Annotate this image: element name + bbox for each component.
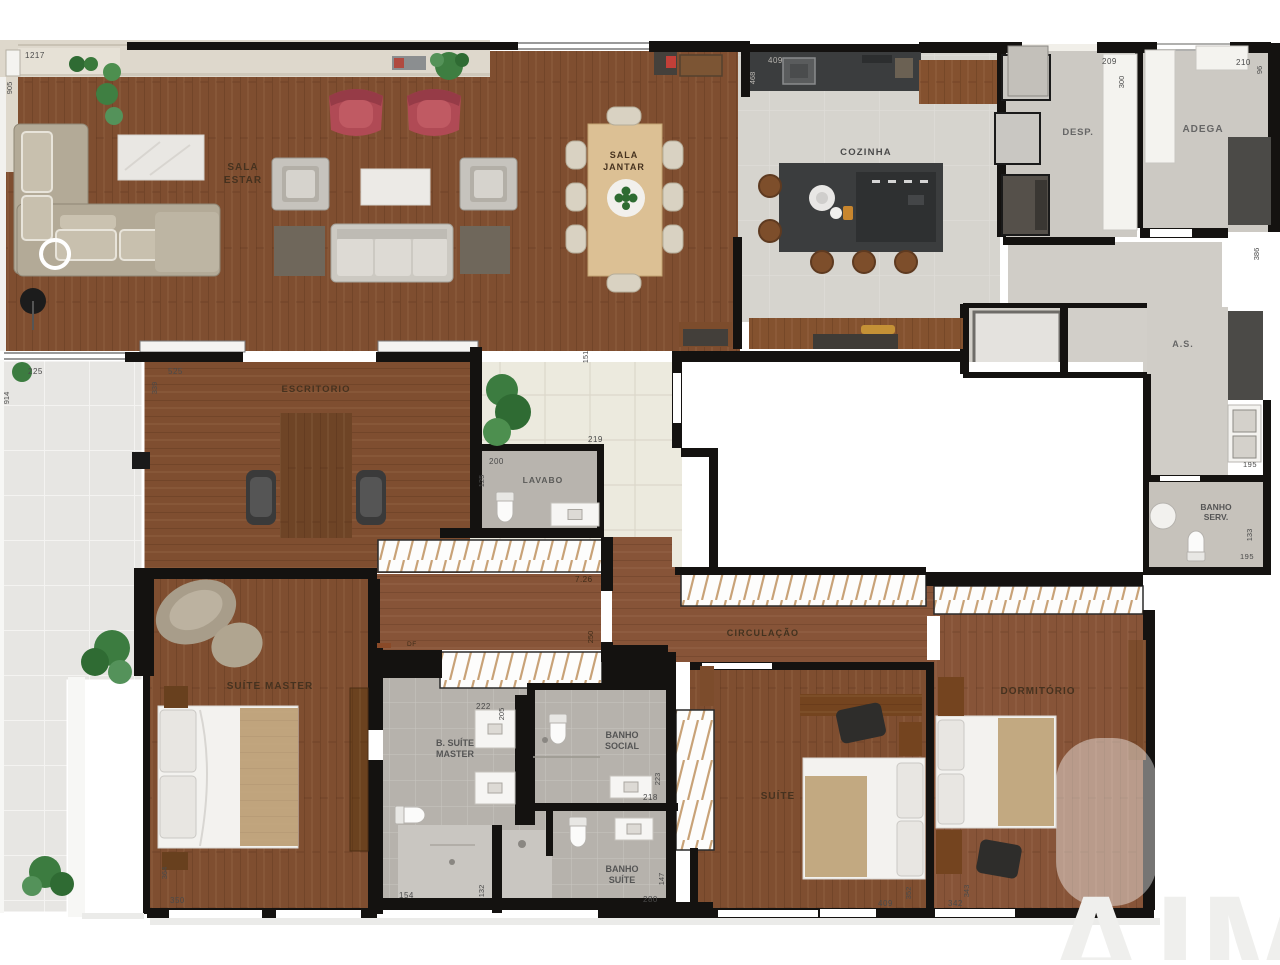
svg-text:DORMITÓRIO: DORMITÓRIO <box>1001 684 1076 697</box>
svg-text:LAVABO: LAVABO <box>523 475 564 485</box>
svg-text:409: 409 <box>768 56 783 65</box>
svg-text:195: 195 <box>1243 460 1257 469</box>
svg-text:DF: DF <box>407 641 417 648</box>
svg-text:364: 364 <box>160 867 169 880</box>
svg-text:COZINHA: COZINHA <box>840 147 892 158</box>
svg-text:350: 350 <box>170 896 185 905</box>
svg-text:225: 225 <box>28 367 43 376</box>
svg-text:ESTAR: ESTAR <box>224 175 262 186</box>
svg-text:210: 210 <box>1236 58 1251 67</box>
svg-text:MASTER: MASTER <box>436 749 475 759</box>
svg-text:CIRCULAÇÃO: CIRCULAÇÃO <box>727 628 800 638</box>
svg-text:B. SUÍTE: B. SUÍTE <box>436 738 474 748</box>
svg-text:SERV.: SERV. <box>1204 512 1229 522</box>
svg-text:125: 125 <box>477 475 486 488</box>
svg-text:218: 218 <box>643 793 658 802</box>
svg-text:914: 914 <box>2 392 11 405</box>
svg-text:132: 132 <box>477 885 486 898</box>
svg-text:BANHO: BANHO <box>1200 502 1232 512</box>
svg-text:ESCRITORIO: ESCRITORIO <box>282 384 351 395</box>
svg-text:133: 133 <box>1245 529 1254 542</box>
svg-text:343: 343 <box>962 885 971 898</box>
svg-text:AIM: AIM <box>1042 864 1280 960</box>
svg-text:386: 386 <box>1252 248 1261 261</box>
svg-text:SUÍTE: SUÍTE <box>609 875 636 885</box>
svg-text:151: 151 <box>581 351 590 364</box>
svg-text:SUÍTE MASTER: SUÍTE MASTER <box>227 679 313 692</box>
svg-text:525: 525 <box>168 367 183 376</box>
svg-text:342: 342 <box>948 899 963 908</box>
svg-text:905: 905 <box>5 82 14 95</box>
svg-text:205: 205 <box>497 708 506 721</box>
svg-text:ADEGA: ADEGA <box>1182 124 1223 135</box>
svg-text:JANTAR: JANTAR <box>603 162 645 172</box>
svg-text:250: 250 <box>586 631 595 644</box>
svg-text:154: 154 <box>399 891 414 900</box>
svg-text:DESP.: DESP. <box>1062 127 1093 138</box>
svg-text:1217: 1217 <box>25 51 45 60</box>
svg-text:147: 147 <box>657 873 666 886</box>
svg-text:BANHO: BANHO <box>606 730 639 740</box>
svg-text:409: 409 <box>878 899 893 908</box>
svg-text:219: 219 <box>588 435 603 444</box>
svg-text:A.S.: A.S. <box>1172 339 1194 349</box>
svg-text:223: 223 <box>653 773 662 786</box>
svg-text:339: 339 <box>150 382 159 395</box>
svg-text:352: 352 <box>904 887 913 900</box>
svg-text:209: 209 <box>1102 57 1117 66</box>
svg-text:SALA: SALA <box>227 162 258 173</box>
svg-text:300: 300 <box>1117 76 1126 89</box>
svg-text:SALA: SALA <box>610 150 639 160</box>
svg-text:195: 195 <box>1240 552 1254 561</box>
svg-text:200: 200 <box>489 457 504 466</box>
svg-text:280: 280 <box>643 895 658 904</box>
svg-text:7.26: 7.26 <box>575 575 593 584</box>
svg-text:222: 222 <box>476 702 491 711</box>
svg-text:SUÍTE: SUÍTE <box>761 789 795 802</box>
svg-text:BANHO: BANHO <box>606 864 639 874</box>
svg-text:SOCIAL: SOCIAL <box>605 741 640 751</box>
svg-text:96: 96 <box>1255 66 1264 74</box>
svg-text:468: 468 <box>748 72 757 85</box>
